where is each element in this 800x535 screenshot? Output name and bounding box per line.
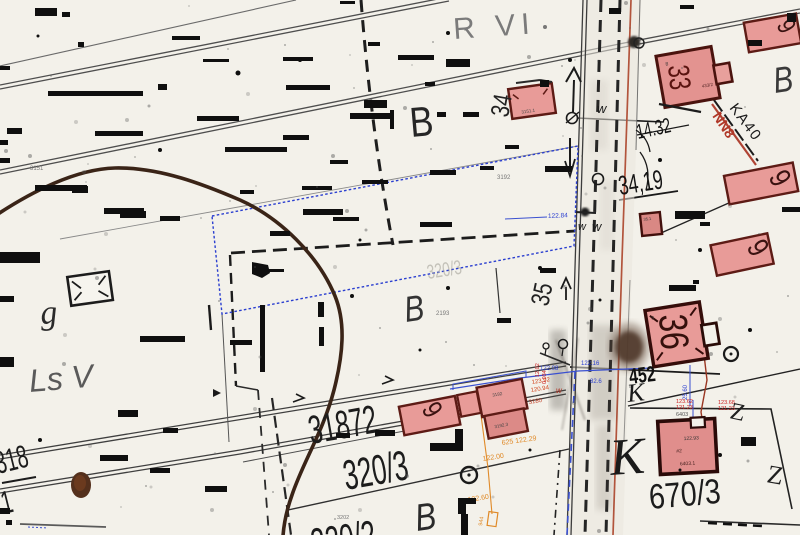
svg-text:33: 33	[661, 63, 697, 91]
svg-text:82.6: 82.6	[590, 379, 602, 385]
svg-text:#2: #2	[676, 448, 682, 454]
svg-text:3151: 3151	[30, 166, 44, 172]
svg-text:122.93: 122.93	[683, 435, 699, 442]
svg-text:K: K	[607, 428, 649, 488]
svg-text:121.23: 121.23	[676, 405, 693, 411]
svg-text:122.84: 122.84	[548, 212, 568, 220]
svg-text:2193: 2193	[436, 311, 450, 317]
svg-text:w: w	[592, 219, 603, 234]
svg-text:12.02: 12.02	[535, 363, 541, 377]
svg-text:3192: 3192	[497, 175, 511, 181]
svg-text:35.1: 35.1	[643, 216, 652, 222]
svg-text:g: g	[39, 294, 59, 332]
svg-text:670/3: 670/3	[647, 471, 722, 516]
svg-text:6403.1: 6403.1	[680, 461, 696, 468]
svg-text:w: w	[597, 101, 608, 116]
svg-text:3202: 3202	[337, 515, 349, 521]
svg-text:6403: 6403	[676, 412, 688, 418]
svg-text:122.16: 122.16	[581, 361, 600, 367]
svg-text:B: B	[408, 98, 435, 146]
svg-text:w: w	[578, 221, 587, 233]
svg-text:25.60: 25.60	[683, 384, 689, 400]
svg-text:36: 36	[650, 312, 698, 351]
svg-text:0.034: 0.034	[542, 370, 548, 384]
svg-text:R VI: R VI	[452, 7, 536, 46]
